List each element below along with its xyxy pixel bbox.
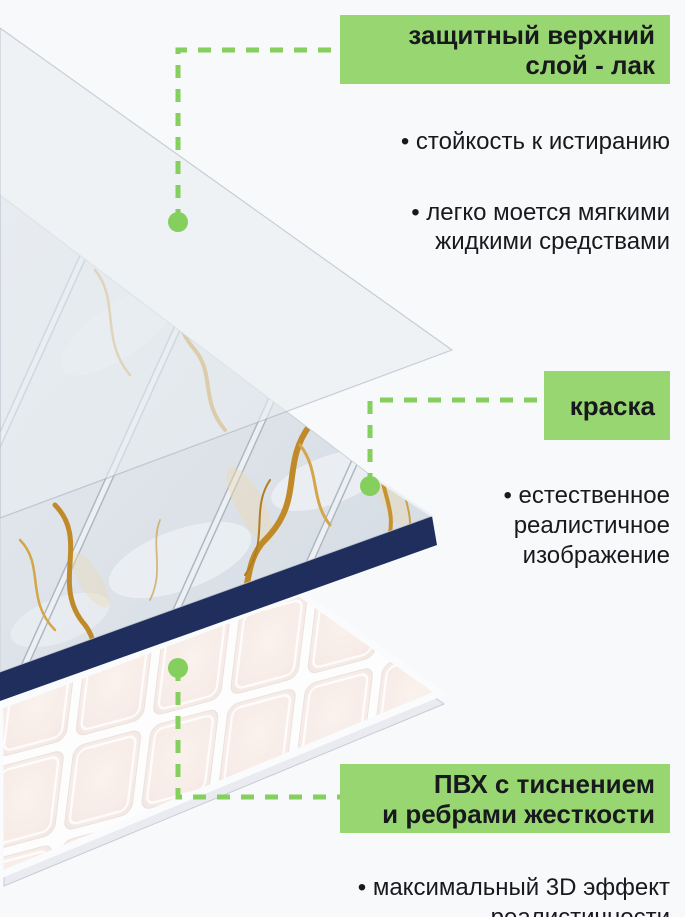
bullet-item: • максимальный 3D эффект реалистичности xyxy=(358,873,670,917)
label-pvc-base-title: ПВХ с тиснением и ребрами жесткости xyxy=(382,769,655,829)
bullets-top-coat: • стойкость к истиранию • легко моется м… xyxy=(401,98,670,285)
bullets-paint: • естественное реалистичное изображение xyxy=(503,451,670,601)
infographic-canvas: защитный верхний слой - лак • стойкость … xyxy=(0,0,685,917)
label-pvc-base: ПВХ с тиснением и ребрами жесткости xyxy=(340,764,670,833)
label-paint-title: краска xyxy=(570,391,655,421)
bullet-item: • легко моется мягкими жидкими средствам… xyxy=(401,198,670,256)
bullet-item: • естественное реалистичное изображение xyxy=(503,481,670,571)
label-top-coat: защитный верхний слой - лак xyxy=(340,15,670,84)
bullets-pvc-base: • максимальный 3D эффект реалистичности xyxy=(358,843,670,917)
connector-dot-middle xyxy=(360,476,380,496)
bullet-item: • стойкость к истиранию xyxy=(401,127,670,156)
label-top-coat-title: защитный верхний слой - лак xyxy=(408,20,655,80)
connector-dot-bottom xyxy=(168,658,188,678)
label-paint: краска xyxy=(544,371,670,440)
connector-dot-top xyxy=(168,212,188,232)
